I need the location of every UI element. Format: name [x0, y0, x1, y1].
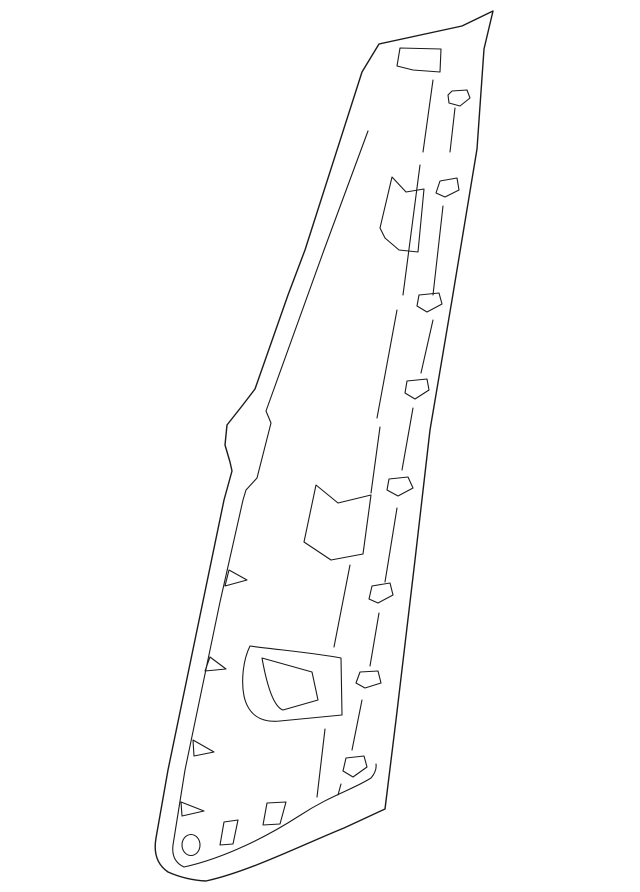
slot-hole-2 — [263, 802, 286, 825]
rib-line-b2 — [433, 206, 443, 295]
clip-boss-2 — [436, 178, 459, 197]
grommet-hole — [182, 835, 200, 856]
rib-line-b5 — [385, 508, 397, 582]
clip-boss-5 — [387, 477, 413, 496]
clip-boss-3 — [417, 293, 442, 312]
edge-notch-3 — [193, 740, 214, 756]
clip-boss-6 — [369, 583, 393, 603]
edge-notch-1 — [225, 570, 247, 586]
window-hole-top — [397, 48, 441, 72]
handle-cup-outer — [243, 646, 342, 721]
rib-line-a2 — [403, 165, 420, 295]
rib-line-b1 — [450, 108, 455, 152]
part-outline — [155, 11, 493, 881]
rib-line-a1 — [423, 80, 433, 152]
clip-boss-1 — [448, 90, 470, 106]
clip-boss-8 — [343, 756, 367, 777]
part-line-drawing — [0, 0, 640, 892]
rib-line-a6 — [317, 729, 325, 797]
edge-notch-4 — [181, 802, 204, 816]
inner-edge-crease — [173, 131, 376, 867]
clip-boss-4 — [405, 379, 429, 399]
rib-line-b3 — [421, 320, 433, 373]
rib-line-b4 — [402, 408, 413, 470]
rib-line-b6 — [370, 613, 379, 666]
rib-line-a4 — [371, 427, 380, 493]
clip-boss-7 — [356, 671, 381, 688]
rib-line-a3 — [377, 310, 397, 418]
fold-tab-middle — [304, 485, 371, 560]
diagram-canvas — [0, 0, 640, 892]
rib-line-a5 — [334, 565, 350, 647]
slot-hole-1 — [220, 820, 238, 845]
rib-line-b7 — [352, 700, 362, 750]
handle-cup-inner — [262, 658, 318, 710]
